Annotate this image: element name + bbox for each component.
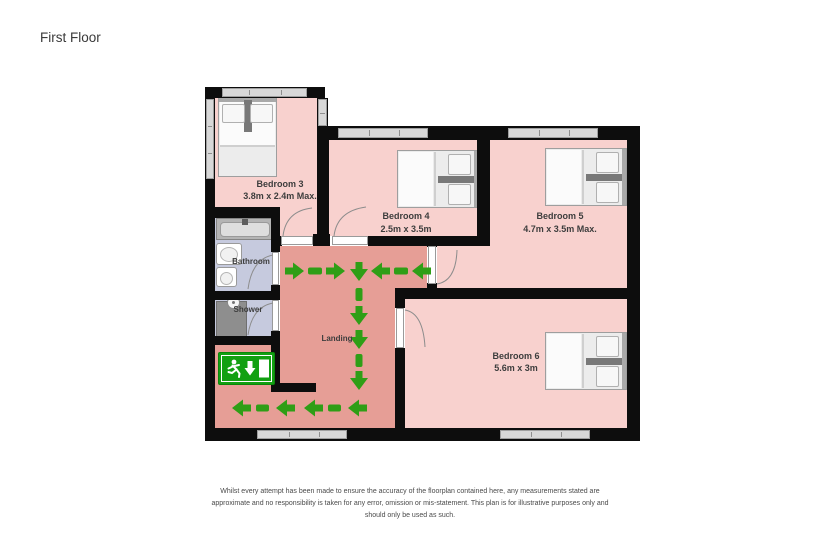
door-shower — [272, 300, 279, 331]
fire-exit-sign — [218, 352, 275, 385]
landing-floor — [280, 246, 427, 288]
wall — [368, 236, 483, 246]
wall — [395, 348, 405, 432]
room-label-shower: Shower — [234, 304, 263, 315]
disclaimer-line-2: approximate and no responsibility is tak… — [0, 498, 820, 510]
wall — [205, 207, 280, 218]
page-title: First Floor — [40, 30, 101, 45]
bed-icon — [397, 150, 479, 208]
room-label-bedroom-4: Bedroom 4 — [382, 211, 429, 222]
room-label-bedroom-6: Bedroom 6 — [492, 351, 539, 362]
bathtub-icon — [216, 218, 273, 240]
bed-icon — [545, 332, 627, 390]
stair-wall — [271, 383, 316, 392]
room-dims-bedroom-5: 4.7m x 3.5m Max. — [523, 224, 597, 235]
bed-icon — [218, 97, 277, 177]
room-label-bathroom: Bathroom — [232, 256, 270, 267]
wall — [205, 291, 280, 300]
room-label-bedroom-5: Bedroom 5 — [536, 211, 583, 222]
door-bedroom-5 — [428, 246, 436, 284]
door-bedroom-3 — [281, 236, 313, 245]
room-dims-bedroom-3: 3.8m x 2.4m Max. — [243, 191, 317, 202]
disclaimer-line-3: should only be used as such. — [0, 510, 820, 522]
wall — [395, 288, 405, 308]
window — [318, 99, 327, 126]
door-bedroom-6 — [396, 308, 404, 348]
room-dims-bedroom-4: 2.5m x 3.5m — [380, 224, 431, 235]
window — [338, 128, 428, 138]
wall — [477, 126, 490, 246]
bed-icon — [545, 148, 627, 206]
wall — [205, 336, 280, 345]
exit-door-icon — [259, 360, 269, 378]
room-bedroom-5-floor — [437, 246, 490, 288]
window — [500, 430, 590, 439]
wall — [317, 126, 329, 236]
wall — [313, 234, 330, 246]
window — [222, 88, 307, 97]
wall — [395, 288, 640, 299]
toilet-icon — [216, 267, 237, 287]
window — [257, 430, 347, 439]
disclaimer-line-1: Whilst every attempt has been made to en… — [0, 486, 820, 498]
door-bedroom-4 — [332, 236, 368, 245]
door-bathroom — [272, 252, 279, 285]
floorplan-canvas: First Floor — [0, 0, 820, 547]
wall — [627, 126, 640, 441]
room-dims-bedroom-6: 5.6m x 3m — [494, 363, 538, 374]
landing-floor — [280, 288, 395, 428]
running-man-icon — [219, 353, 274, 384]
window — [206, 99, 214, 179]
room-label-bedroom-3: Bedroom 3 — [256, 179, 303, 190]
window — [508, 128, 598, 138]
room-label-landing: Landing — [321, 333, 352, 344]
wall — [271, 207, 280, 252]
down-arrow-icon — [245, 361, 256, 376]
